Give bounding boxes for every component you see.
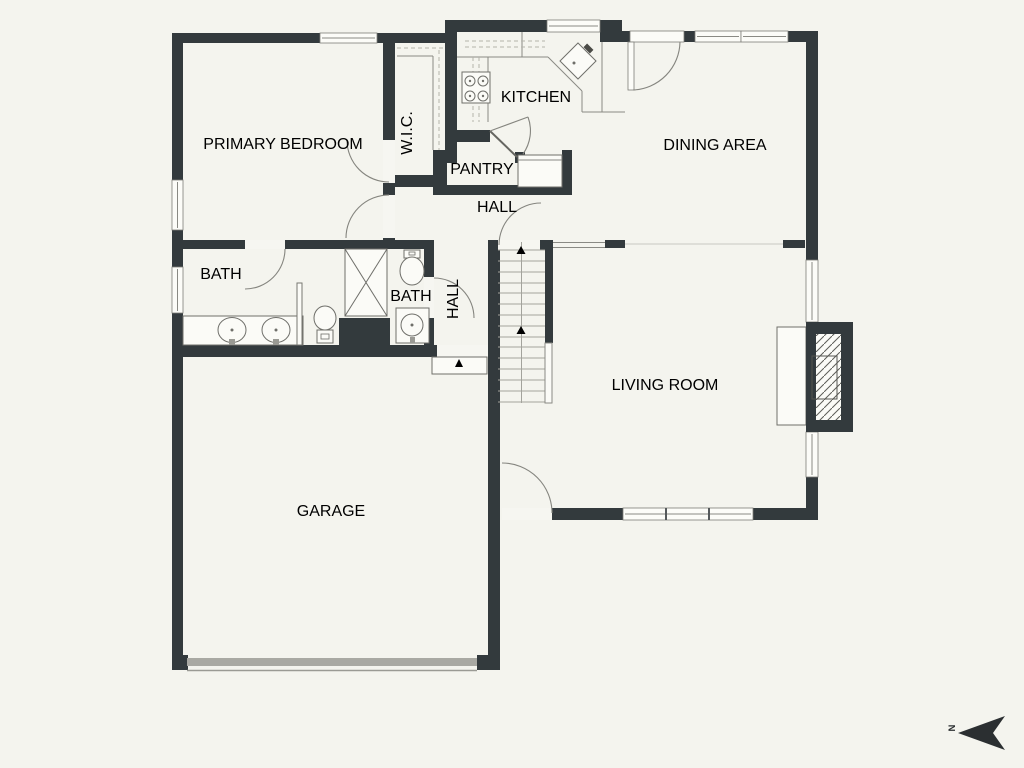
pantry-label: PANTRY [450, 161, 514, 178]
window [547, 20, 600, 32]
kitchen-sink-icon [560, 43, 596, 79]
bath-primary-label: BATH [200, 266, 241, 283]
window [172, 180, 183, 230]
window [320, 33, 377, 43]
door-openings [245, 31, 684, 520]
fireplace-hearth [777, 327, 806, 425]
bath-hall-label: BATH [390, 288, 431, 305]
garage-entry-opening [437, 345, 488, 357]
stair-railing [545, 343, 552, 403]
living-room-label: LIVING ROOM [612, 377, 719, 394]
stair-hall-door-opening [498, 240, 540, 250]
north-label: N [947, 724, 958, 731]
primary-bedroom-label: PRIMARY BEDROOM [203, 136, 362, 153]
fireplace-icon [777, 322, 853, 432]
living-exterior-door-arc [502, 463, 552, 513]
window [695, 31, 741, 42]
room-labels: PRIMARY BEDROOM W.I.C. KITCHEN PANTRY HA… [200, 89, 767, 520]
toilet-icon [400, 250, 424, 285]
garage-label: GARAGE [297, 503, 365, 520]
stove-icon [462, 72, 490, 103]
staircase [498, 242, 552, 403]
window [806, 432, 818, 477]
window [806, 260, 818, 322]
kitchen-label: KITCHEN [501, 89, 571, 106]
shower-icon [345, 249, 387, 316]
dining-exterior-door [628, 42, 680, 90]
vanity-partition [297, 283, 302, 345]
bath-door-arc [245, 249, 285, 289]
wic-door-opening [383, 140, 395, 183]
north-arrow-icon: N [947, 716, 1005, 750]
window [172, 267, 183, 313]
vanity-sink [396, 308, 429, 343]
cased-opening [553, 243, 783, 248]
pantry-door [490, 117, 530, 157]
double-vanity [183, 316, 303, 345]
bedroom-door-opening [383, 195, 395, 238]
garage-door [187, 658, 477, 671]
refrigerator-alcove [518, 155, 562, 187]
wic-label: W.I.C. [399, 111, 416, 155]
door-swings [245, 42, 680, 513]
floor-plan: PRIMARY BEDROOM W.I.C. KITCHEN PANTRY HA… [0, 0, 1024, 768]
bedroom-door-arc [346, 195, 389, 238]
window [741, 31, 788, 42]
hall-upper-label: HALL [477, 199, 517, 216]
dining-exterior-door-opening [630, 31, 684, 42]
hall-lower-label: HALL [445, 279, 462, 319]
dining-area-label: DINING AREA [663, 137, 766, 154]
window [623, 508, 753, 520]
bath-door-opening [245, 240, 285, 249]
living-exterior-door-opening [502, 508, 552, 520]
garage-step-landing [432, 357, 487, 374]
toilet-icon [314, 306, 336, 343]
